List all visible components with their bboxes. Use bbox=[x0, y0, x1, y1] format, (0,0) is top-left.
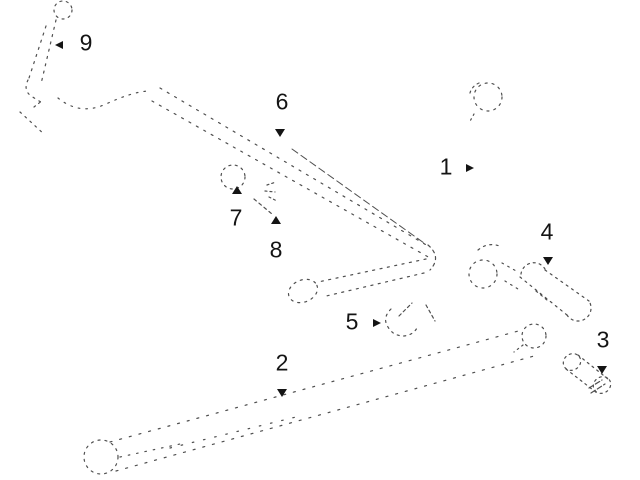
callout-pointer-1-triangle-right-icon bbox=[466, 164, 474, 172]
callout-label-1: 1 bbox=[440, 156, 453, 179]
callout-label-5: 5 bbox=[346, 311, 359, 334]
callout-pointer-2-triangle-down-icon bbox=[277, 389, 287, 397]
callout-label-7: 7 bbox=[230, 207, 243, 230]
callout-label-6: 6 bbox=[276, 91, 289, 114]
callout-pointer-3-triangle-down-icon bbox=[597, 366, 607, 374]
callout-label-2: 2 bbox=[276, 352, 289, 375]
callout-pointer-7-triangle-up-icon bbox=[232, 186, 242, 194]
callout-label-9: 9 bbox=[80, 32, 93, 55]
callout-layer: 123456789 bbox=[0, 0, 640, 480]
callout-pointer-8-triangle-up-icon bbox=[271, 216, 281, 224]
callout-pointer-4-triangle-down-icon bbox=[543, 257, 553, 265]
parts-diagram-figure: 123456789 bbox=[0, 0, 640, 480]
callout-pointer-9-triangle-left-icon bbox=[55, 41, 63, 49]
callout-pointer-5-triangle-right-icon bbox=[373, 319, 381, 327]
callout-label-8: 8 bbox=[270, 239, 283, 262]
callout-label-3: 3 bbox=[597, 329, 610, 352]
callout-label-4: 4 bbox=[541, 221, 554, 244]
callout-pointer-6-triangle-down-icon bbox=[275, 129, 285, 137]
